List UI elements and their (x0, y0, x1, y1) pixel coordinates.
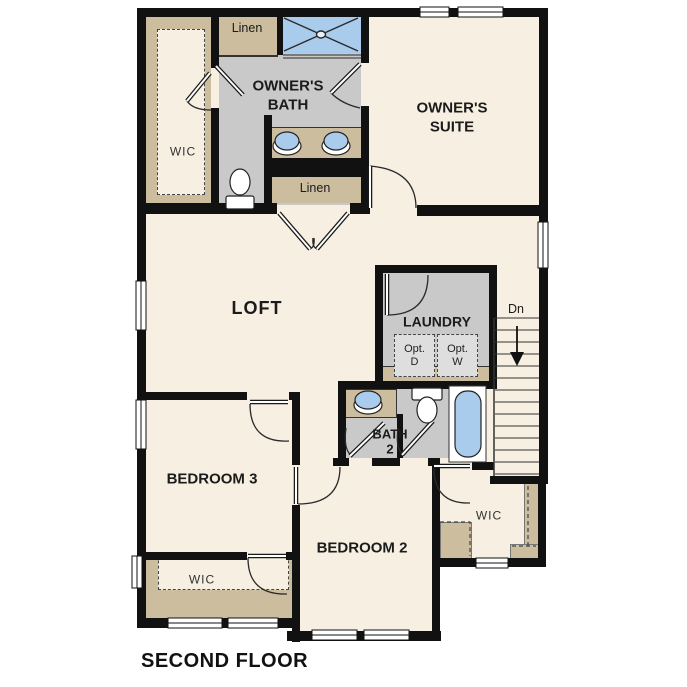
wall-laundry-top (375, 265, 497, 273)
wall-bed2-south (287, 631, 441, 641)
wall-suite-bottom-a (137, 203, 277, 214)
floor-bed2-lip (300, 618, 432, 632)
wall-bath-suite-b (361, 106, 369, 205)
wall-laundry-right (489, 265, 497, 389)
bedroom2-label: BEDROOM 2 (317, 540, 408, 559)
bed3-wic-label: WIC (189, 573, 215, 588)
wall-bath-suite-a (361, 17, 369, 63)
wall-bath2-top (338, 381, 495, 389)
laundry-label: LAUNDRY (403, 313, 471, 331)
wall-wic2-right (538, 484, 546, 564)
wall-exterior-right (539, 8, 548, 484)
vanity-counter (268, 127, 363, 160)
bed2-wic-shelf-left (440, 522, 472, 560)
owners-wic-inner (157, 29, 205, 195)
bedroom3-label: BEDROOM 3 (167, 471, 258, 490)
loft-label: LOFT (232, 297, 283, 320)
opt-washer-label: Opt. W (447, 343, 468, 368)
wall-bed3-south (137, 618, 300, 628)
optional-dryer-box: Opt. D (394, 334, 435, 377)
bed3-wic-inner (158, 555, 289, 590)
wall-wic2-top (472, 462, 494, 470)
wall-linen-shower (277, 8, 283, 55)
wall-bed2-right (432, 458, 440, 641)
linen-upper-label: Linen (232, 21, 263, 37)
wall-loft-bed3-a (137, 392, 247, 400)
bed2-wic-label: WIC (476, 509, 502, 524)
floor-plan: Opt. D Opt. W (0, 0, 687, 687)
wall-bed2-top-c (428, 458, 440, 466)
bath2-label: BATH 2 (372, 427, 407, 456)
wall-bed3-wic-stub (286, 552, 294, 560)
plan-title: SECOND FLOOR (141, 650, 308, 673)
wall-wic-owner-a (211, 17, 219, 68)
wall-bed3-wic (137, 552, 247, 560)
wall-wic-owner-b (211, 108, 219, 203)
owners-wic-label: WIC (170, 145, 196, 160)
wall-bed3-right-a (292, 392, 300, 465)
wall-suite-bottom-c (417, 205, 548, 216)
wall-laundry-left (375, 265, 383, 389)
wall-exterior-left (137, 8, 146, 628)
wall-exterior-top (140, 8, 548, 17)
owners-suite-label: OWNER'S SUITE (416, 99, 487, 137)
opt-dryer-label: Opt. D (404, 343, 425, 368)
wall-bed2-top-a (333, 458, 349, 466)
wall-bed2-top-b (372, 458, 400, 466)
shower (283, 17, 361, 53)
owners-bath-label: OWNER'S BATH (252, 77, 323, 115)
wall-stairs-south (490, 476, 548, 484)
wall-bath2-left (338, 381, 346, 458)
optional-washer-box: Opt. W (437, 334, 478, 377)
wall-vanity-band (264, 158, 369, 177)
wall-wic2-south (432, 558, 546, 567)
linen-lower-label: Linen (300, 181, 331, 197)
stairs-dn-label: Dn (508, 302, 524, 318)
bath2-counter (345, 389, 397, 418)
